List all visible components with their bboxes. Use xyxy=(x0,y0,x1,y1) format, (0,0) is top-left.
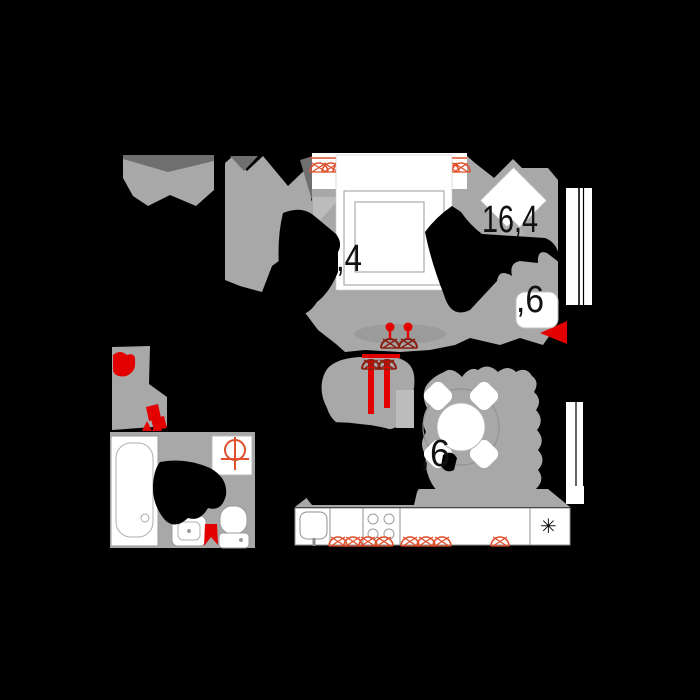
label-pouf-zone: ,6 xyxy=(516,279,544,321)
floor-plan: ✳ xyxy=(0,0,700,700)
floor-plan-canvas: ✳ xyxy=(0,0,700,700)
label-kitchen-zone: ,6 xyxy=(420,433,450,475)
label-living-room: 16,4 xyxy=(482,199,538,241)
kitchen-sink xyxy=(300,512,327,539)
label-bed-zone: ,4 xyxy=(336,238,362,280)
duvet xyxy=(355,202,424,272)
drain xyxy=(141,514,149,522)
shadow-blob-kitchen xyxy=(295,422,420,505)
toilet xyxy=(219,506,249,548)
kitchen-counter: ✳ xyxy=(295,508,570,546)
window-glazing-top xyxy=(566,188,592,305)
bathtub xyxy=(111,436,158,546)
washing-machine xyxy=(212,436,252,475)
balcony-railing-bottom xyxy=(566,402,584,504)
kitchen-lobe-highlight xyxy=(396,390,414,428)
rug xyxy=(354,324,446,344)
fridge-icon: ✳ xyxy=(540,516,557,538)
